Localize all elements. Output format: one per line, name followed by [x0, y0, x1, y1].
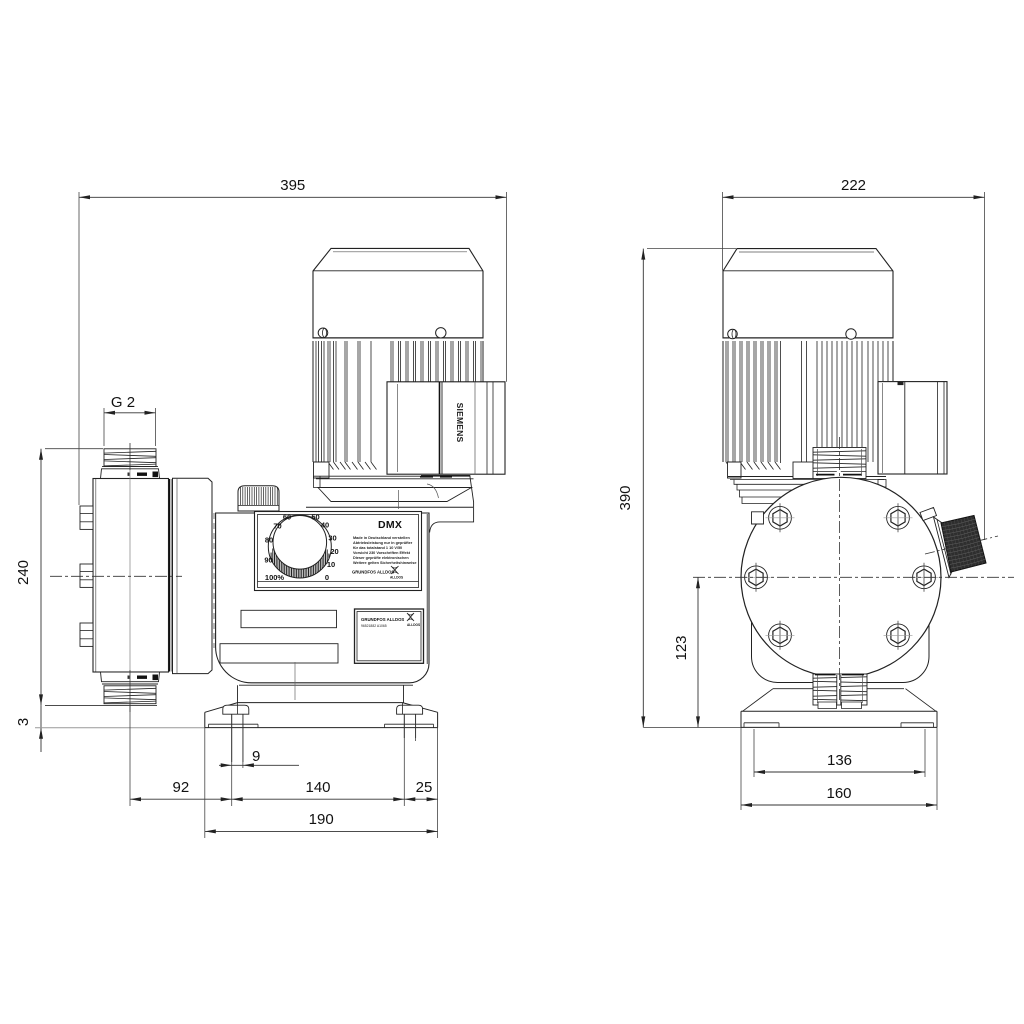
svg-text:70: 70 [273, 522, 281, 531]
svg-text:100%: 100% [265, 573, 285, 582]
svg-text:Abtriebsleistung nur in geprüf: Abtriebsleistung nur in geprüfter [353, 541, 413, 545]
svg-text:60: 60 [283, 513, 291, 522]
svg-text:GRUNDFOS ALLDOS: GRUNDFOS ALLDOS [352, 570, 394, 575]
svg-text:92: 92 [173, 779, 190, 796]
svg-text:für das totalstand 1 10 V/50: für das totalstand 1 10 V/50 [353, 546, 402, 550]
svg-text:Weitere gelten Sicherheitshinw: Weitere gelten Sicherheitshinweise [353, 561, 416, 565]
svg-text:40: 40 [321, 521, 329, 530]
svg-text:9: 9 [252, 748, 260, 765]
svg-text:Made in Deutschland verstellen: Made in Deutschland verstellen [353, 536, 410, 540]
svg-text:25: 25 [416, 779, 433, 796]
svg-text:390: 390 [617, 485, 634, 510]
svg-text:G 2: G 2 [111, 394, 135, 411]
svg-text:80: 80 [265, 536, 273, 545]
svg-text:Vorsicht 230 Vorschriften Effe: Vorsicht 230 Vorschriften Effekt [353, 551, 411, 555]
svg-text:395: 395 [280, 177, 305, 194]
svg-text:160: 160 [826, 785, 851, 802]
svg-text:SIEMENS: SIEMENS [455, 403, 465, 443]
svg-text:DMX: DMX [378, 519, 402, 531]
svg-text:3: 3 [15, 718, 32, 726]
svg-text:Dieser geprüfte elektronischen: Dieser geprüfte elektronischen [353, 556, 409, 560]
svg-text:50: 50 [311, 513, 319, 522]
svg-text:20: 20 [330, 547, 338, 556]
svg-text:10: 10 [327, 560, 335, 569]
svg-text:190: 190 [309, 811, 334, 828]
svg-text:30: 30 [328, 534, 336, 543]
svg-text:222: 222 [841, 177, 866, 194]
svg-text:96521882 A1065: 96521882 A1065 [361, 624, 387, 628]
svg-text:240: 240 [15, 560, 32, 585]
svg-text:ALLDOS: ALLDOS [407, 623, 420, 627]
svg-text:ALLDOS: ALLDOS [390, 576, 403, 580]
svg-text:136: 136 [827, 752, 852, 769]
svg-text:90: 90 [264, 556, 272, 565]
svg-text:140: 140 [305, 779, 330, 796]
svg-text:0: 0 [325, 573, 329, 582]
svg-text:123: 123 [673, 635, 690, 660]
svg-text:GRUNDFOS ALLDOS: GRUNDFOS ALLDOS [361, 617, 404, 622]
